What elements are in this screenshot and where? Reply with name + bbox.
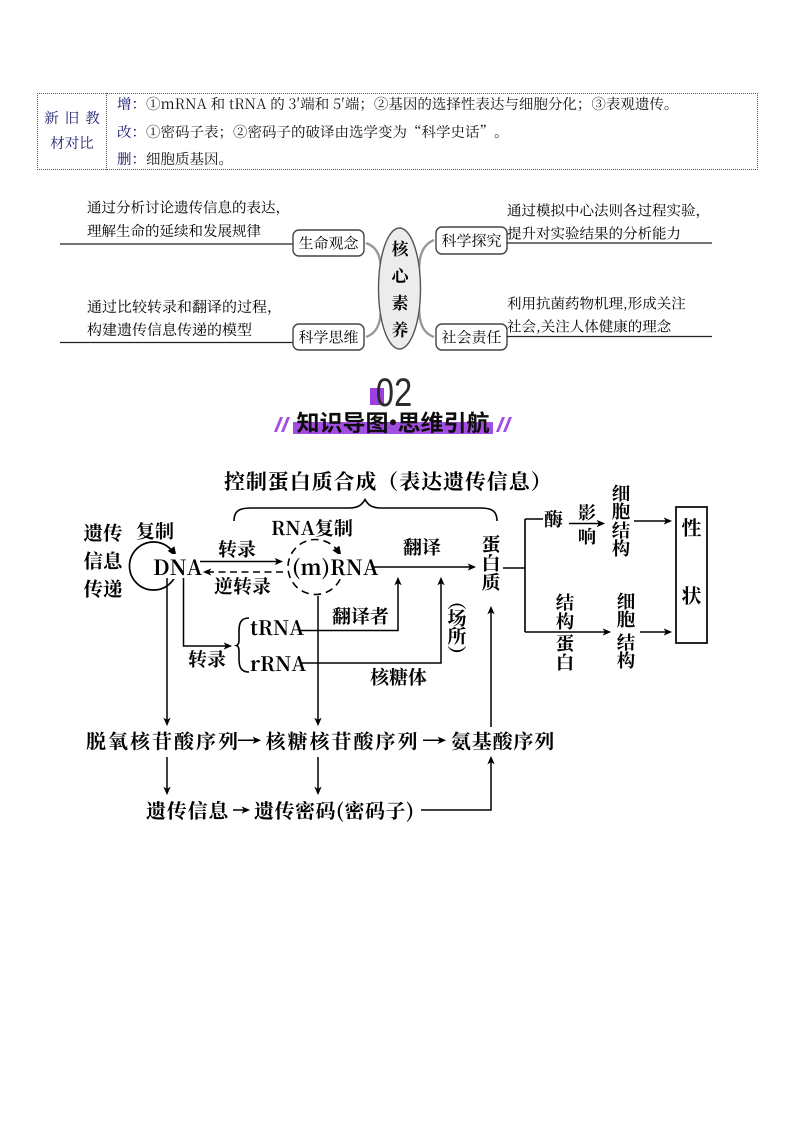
svg-text:︶: ︶ (447, 641, 466, 668)
svg-text:核糖体: 核糖体 (370, 663, 427, 690)
svg-text:遗传密码(密码子): 遗传密码(密码子) (254, 795, 415, 824)
svg-text:科学探究: 科学探究 (441, 230, 501, 251)
svg-text:养: 养 (392, 316, 409, 341)
svg-text:翻译: 翻译 (403, 533, 441, 560)
svg-text:酶: 酶 (544, 505, 563, 532)
svg-text:氨基酸序列: 氨基酸序列 (451, 726, 555, 755)
svg-text:构建遗传信息传递的模型: 构建遗传信息传递的模型 (87, 319, 252, 340)
svg-text:核: 核 (392, 235, 411, 260)
svg-text:通过分析讨论遗传信息的表达，: 通过分析讨论遗传信息的表达， (87, 197, 290, 218)
svg-text:转录: 转录 (218, 535, 256, 562)
svg-text:信息: 信息 (83, 546, 124, 574)
svg-text:响: 响 (578, 523, 596, 549)
svg-text:复制: 复制 (136, 517, 174, 544)
svg-text:通过模拟中心法则各过程实验，: 通过模拟中心法则各过程实验， (507, 200, 710, 221)
svg-text:遗传: 遗传 (83, 518, 123, 546)
svg-text:rRNA: rRNA (250, 648, 306, 677)
svg-text:社会责任: 社会责任 (441, 327, 501, 348)
svg-text:逆转录: 逆转录 (214, 572, 271, 599)
svg-text:翻译者: 翻译者 (332, 602, 389, 629)
svg-text:状: 状 (682, 580, 703, 609)
svg-text:质: 质 (481, 568, 500, 595)
svg-text:控制蛋白质合成（表达遗传信息）: 控制蛋白质合成（表达遗传信息） (224, 466, 553, 496)
svg-text:素: 素 (392, 289, 409, 314)
svg-text:社会,关注人体健康的理念: 社会,关注人体健康的理念 (507, 316, 672, 337)
svg-text:生命观念: 生命观念 (298, 233, 359, 254)
svg-text:通过比较转录和翻译的过程，: 通过比较转录和翻译的过程， (87, 296, 282, 317)
svg-text:理解生命的延续和发展规律: 理解生命的延续和发展规律 (87, 220, 261, 241)
svg-text:DNA: DNA (153, 552, 203, 582)
svg-text:核糖核苷酸序列: 核糖核苷酸序列 (266, 726, 420, 755)
svg-text:转录: 转录 (188, 645, 226, 672)
svg-text:脱氧核苷酸序列: 脱氧核苷酸序列 (86, 726, 240, 755)
svg-text:影: 影 (578, 499, 596, 525)
svg-text:性: 性 (682, 512, 702, 541)
svg-text:构: 构 (612, 535, 631, 561)
svg-text:(m)RNA: (m)RNA (292, 552, 379, 582)
svg-text:构: 构 (617, 647, 636, 673)
svg-text:心: 心 (392, 262, 411, 287)
svg-text:提升对实验结果的分析能力: 提升对实验结果的分析能力 (507, 223, 681, 244)
svg-text:传递: 传递 (83, 574, 122, 602)
svg-text:遗传信息: 遗传信息 (146, 795, 230, 824)
svg-text:利用抗菌药物机理,形成关注: 利用抗菌药物机理,形成关注 (507, 293, 686, 314)
svg-text:白: 白 (556, 649, 575, 675)
svg-text:RNA复制: RNA复制 (271, 514, 353, 541)
svg-text:tRNA: tRNA (250, 612, 304, 641)
svg-text:科学思维: 科学思维 (298, 327, 358, 348)
